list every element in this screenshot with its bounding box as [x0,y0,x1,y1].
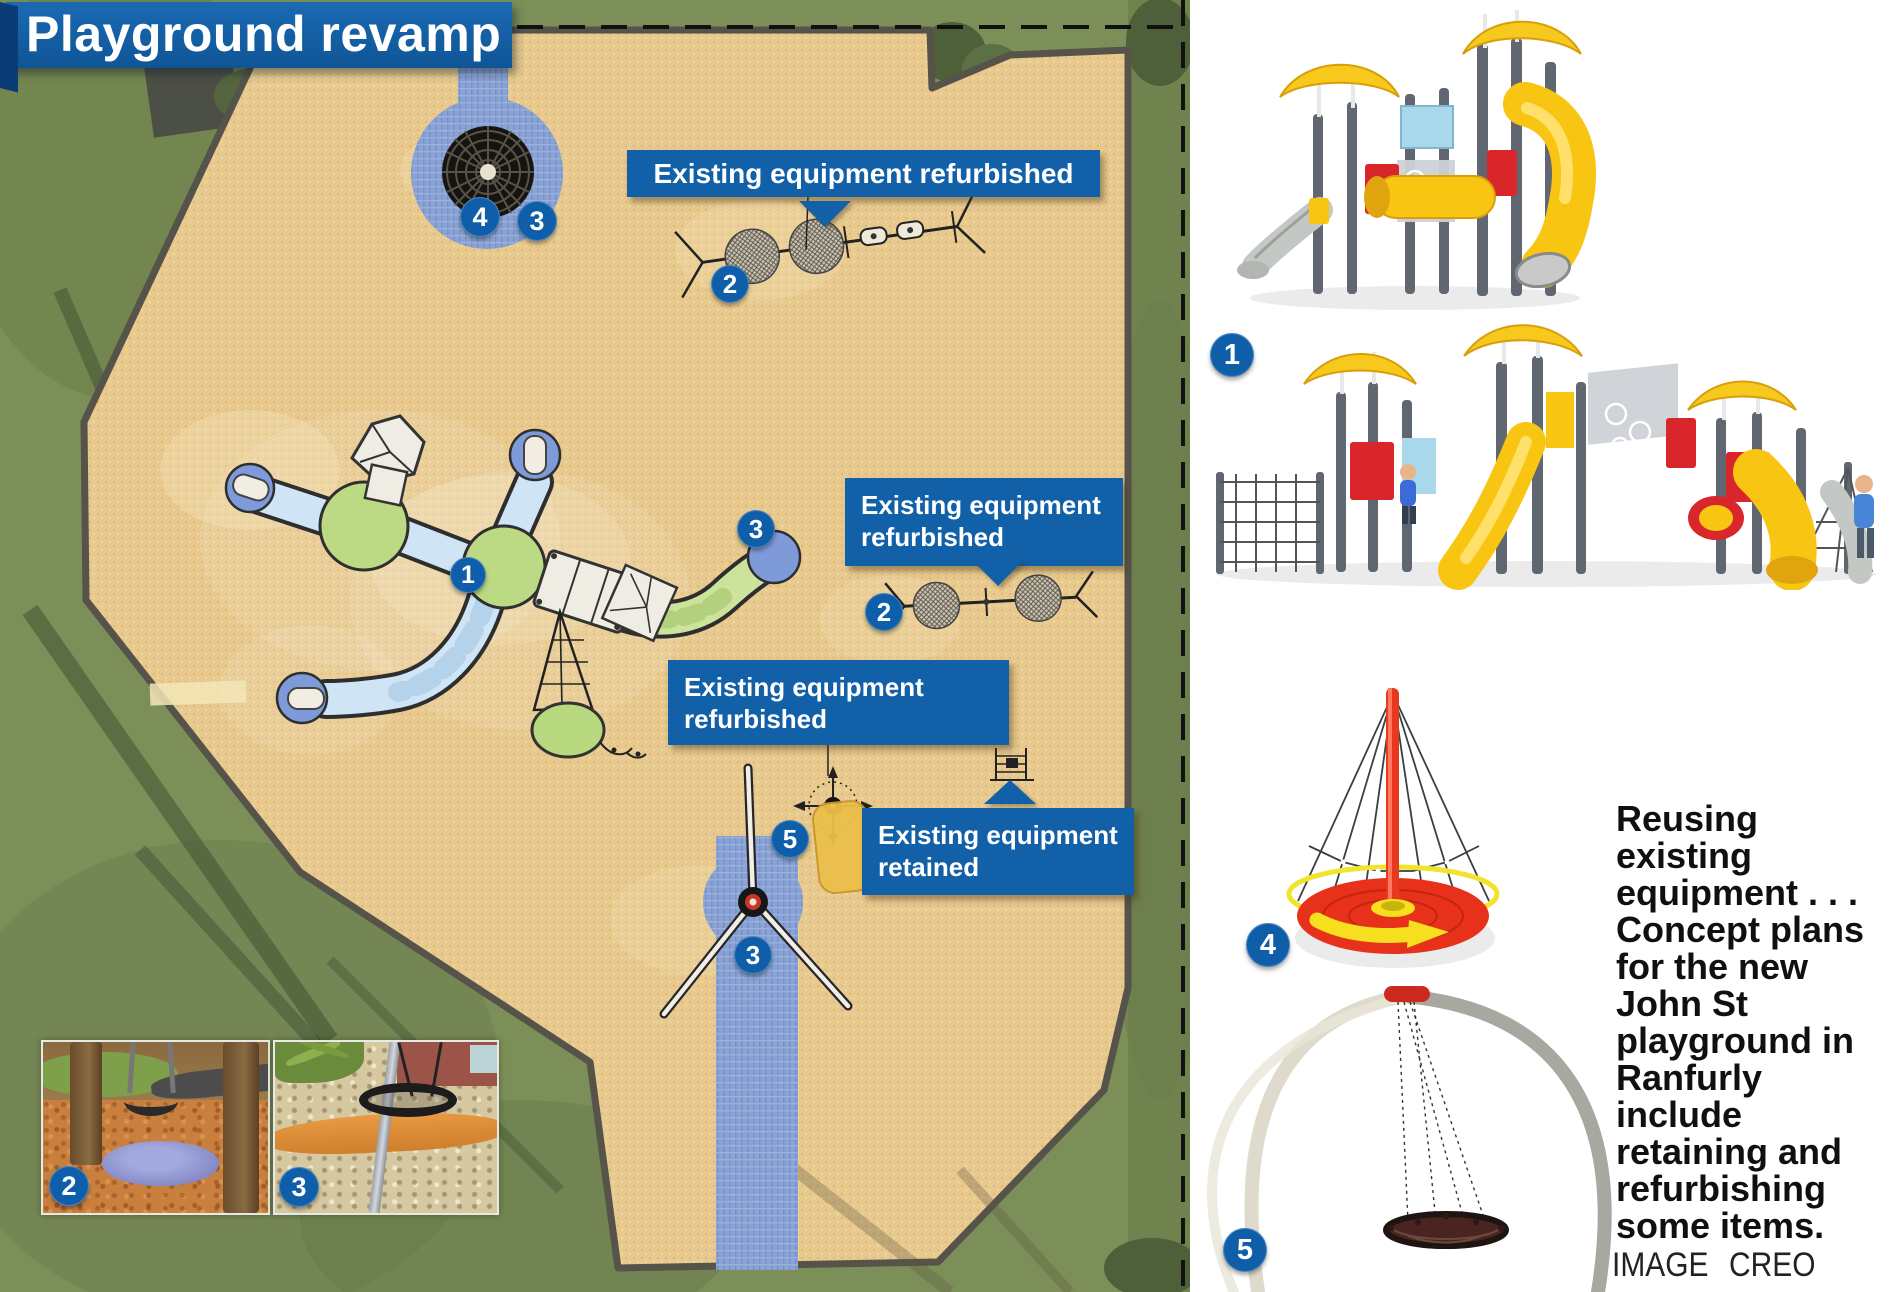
label-line: refurbished [684,703,1009,735]
render-playset-1 [1225,2,1605,316]
render-playset-2 [1196,322,1889,590]
map-badge-2-top: 2 [711,265,749,303]
label-retained: Existing equipment retained [862,808,1134,895]
adult-figure [1854,475,1874,558]
page-title: Playground revamp [6,2,512,66]
label-line: refurbished [861,521,1123,553]
title-banner: Playground revamp [6,2,512,68]
render-badge-5: 5 [1223,1228,1267,1272]
label-line: Existing equipment [861,489,1123,521]
map-badge-3-turbine: 3 [734,936,772,974]
infographic: Playground revamp Existing equipment ref… [0,0,1889,1292]
render-badge-1: 1 [1210,333,1254,377]
child-figure [1400,464,1416,524]
label-line: retained [878,851,1134,883]
inset-badge-2: 2 [49,1166,89,1206]
label-refurbished-mid: Existing equipment refurbished [668,660,1009,745]
label-refurbished-top: Existing equipment refurbished [627,150,1100,197]
label-refurbished-right: Existing equipment refurbished [845,478,1123,566]
arrow-up-icon [984,780,1036,804]
inset-badge-3: 3 [279,1167,319,1207]
map-badge-3: 3 [517,201,557,241]
label-line: Existing equipment [878,819,1134,851]
map-badge-5: 5 [771,820,809,858]
arrow-down-icon [799,201,851,227]
arrow-down-icon [972,560,1024,586]
map-badge-1: 1 [450,557,486,593]
render-cone-spinner [1283,676,1513,990]
caption-text: Reusing existing equipment . . . Concept… [1616,800,1876,1244]
label-line: Existing equipment [684,671,1009,703]
map-badge-4: 4 [460,197,500,237]
render-badge-4: 4 [1246,923,1290,967]
map-badge-2-mid: 2 [865,593,903,631]
map-badge-3-tube: 3 [737,510,775,548]
